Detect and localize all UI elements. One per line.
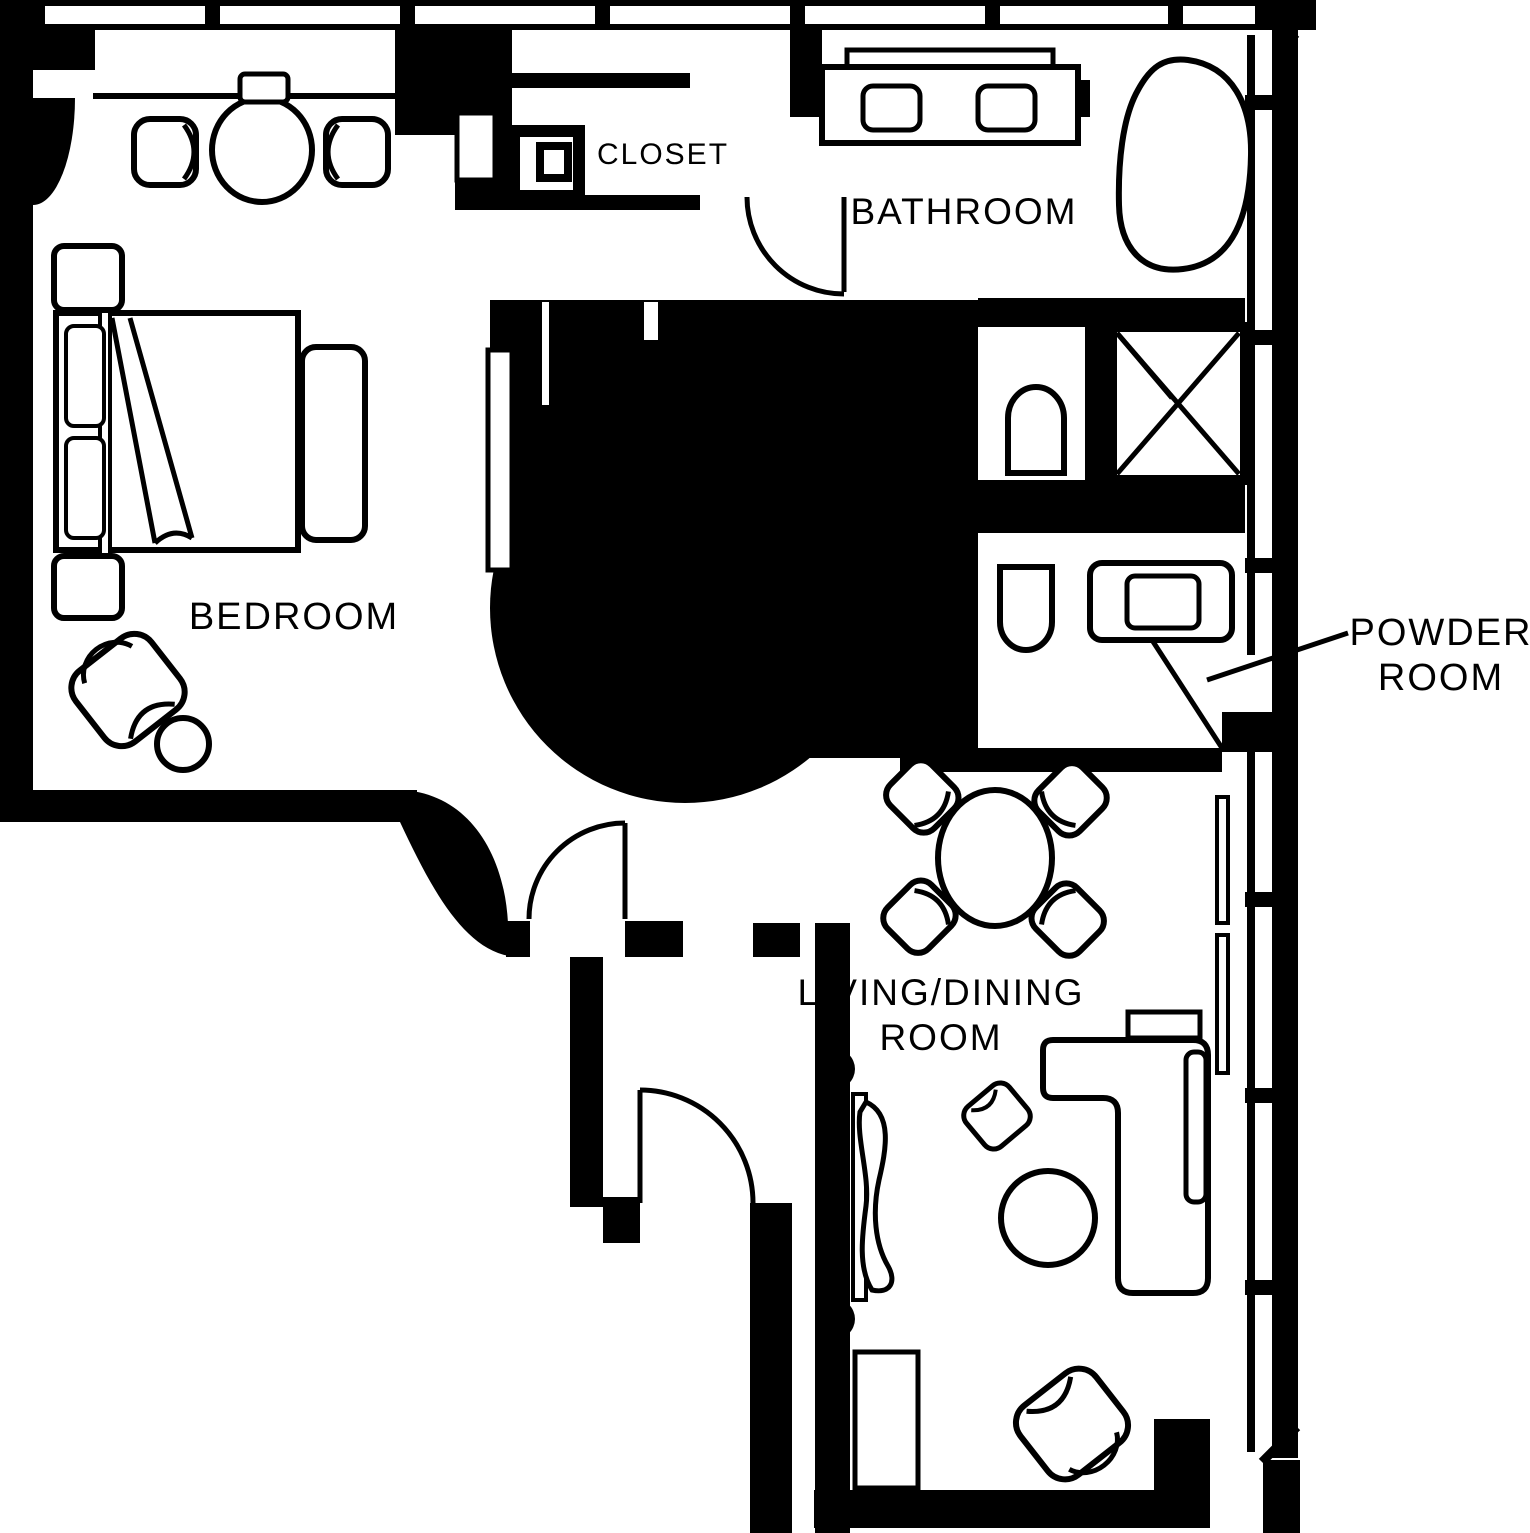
wall-bottom [814,1490,1210,1528]
wall-entry-right [750,1203,792,1533]
powder-room-label-line1: POWDER [1350,612,1530,654]
powder-room-fixtures [1000,563,1232,650]
core-pocket-slot-1 [542,302,549,405]
wall-corner-se [1263,1460,1300,1533]
wall-closet-north [512,73,690,88]
ottoman [959,1078,1035,1154]
sofa-back-cushion [1128,1012,1200,1038]
living-dining-label-line2: ROOM [879,1017,1002,1058]
wall-hall-b [625,921,683,957]
wall-bathroom-west [790,25,822,117]
bed [56,297,298,555]
core-pocket-slot-2 [644,302,658,340]
nightstand-bottom [54,556,122,618]
powder-room-door [1152,640,1222,748]
bedroom-wall-chair [240,74,288,102]
bathroom-label: BATHROOM [850,191,1077,232]
wall-corridor-stub [603,1197,640,1243]
bedroom-round-table [212,98,312,202]
cabinet [855,1352,918,1488]
bathtub [1119,60,1251,270]
coffee-table [1001,1171,1095,1265]
sofa-arm-cushion [1186,1052,1206,1202]
sink-right [978,86,1035,130]
wall-bedroom-south [0,790,417,822]
wall-entry-stub-top [753,923,800,957]
living-dining-furniture [853,754,1228,1495]
closet-column-center [544,150,564,174]
pillow-top [66,326,104,426]
bedroom-side-table [157,718,209,770]
shower [1112,327,1245,480]
bedroom-door [529,823,625,919]
bathroom-door [747,197,844,294]
core-sliding-door [488,350,512,570]
bedroom-chair-right [326,119,388,185]
entry-door [640,1090,753,1203]
wall-left [0,0,33,822]
closet-sliding-door [457,113,495,180]
closet-label: CLOSET [597,138,729,171]
bedroom-chair-left [134,119,196,185]
floor-plan-page: CLOSET BATHROOM BEDROOM POWDER ROOM LIVI… [0,0,1530,1533]
powder-room-label-line2: ROOM [1378,657,1504,699]
toilet [1008,387,1064,473]
foot-bench [302,347,365,540]
pillow-bottom [66,438,104,538]
living-dining-label-line1: LIVING/DINING [797,972,1084,1013]
living-armchair [1007,1360,1142,1495]
wall-column-bump [33,98,75,205]
window-panes-top [45,6,1255,24]
sink-left [863,86,920,130]
wall-curved [400,790,518,957]
wall-hall-a [506,921,530,957]
powder-toilet [1000,567,1052,650]
nightstand-top [54,246,122,310]
wall-right-band [1272,30,1298,1458]
floor-plan: CLOSET BATHROOM BEDROOM POWDER ROOM LIVI… [0,0,1530,1533]
wall-living-west [815,923,850,1533]
wall-corridor [570,957,603,1207]
powder-sink [1127,576,1199,628]
wall-bottom-step [1154,1419,1210,1497]
window-slat-2 [1217,935,1228,1073]
bedroom-furniture [54,74,388,770]
bedroom-label: BEDROOM [189,596,399,638]
vanity-counter [822,67,1078,143]
window-slat-1 [1217,797,1228,923]
